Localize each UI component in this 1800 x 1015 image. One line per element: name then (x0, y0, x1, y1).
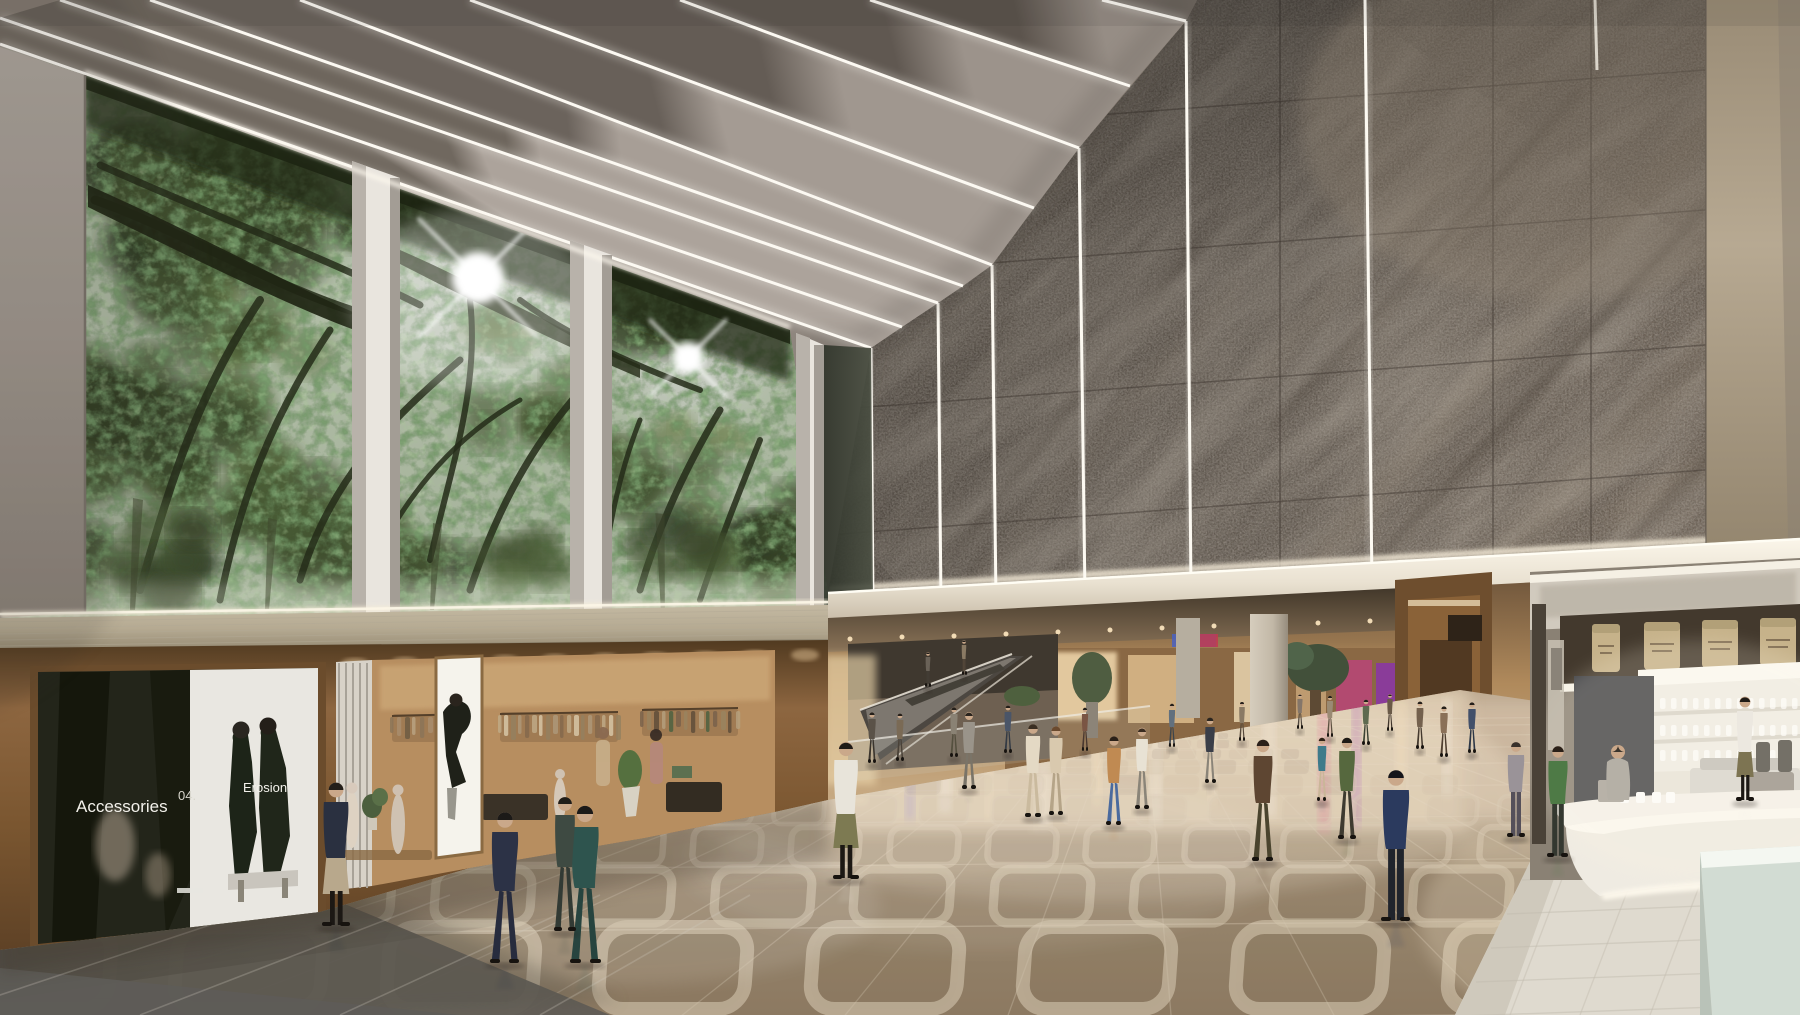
svg-text:Erosion: Erosion (243, 780, 287, 795)
svg-text:Accessories: Accessories (76, 797, 168, 816)
svg-text:04.: 04. (178, 788, 196, 803)
